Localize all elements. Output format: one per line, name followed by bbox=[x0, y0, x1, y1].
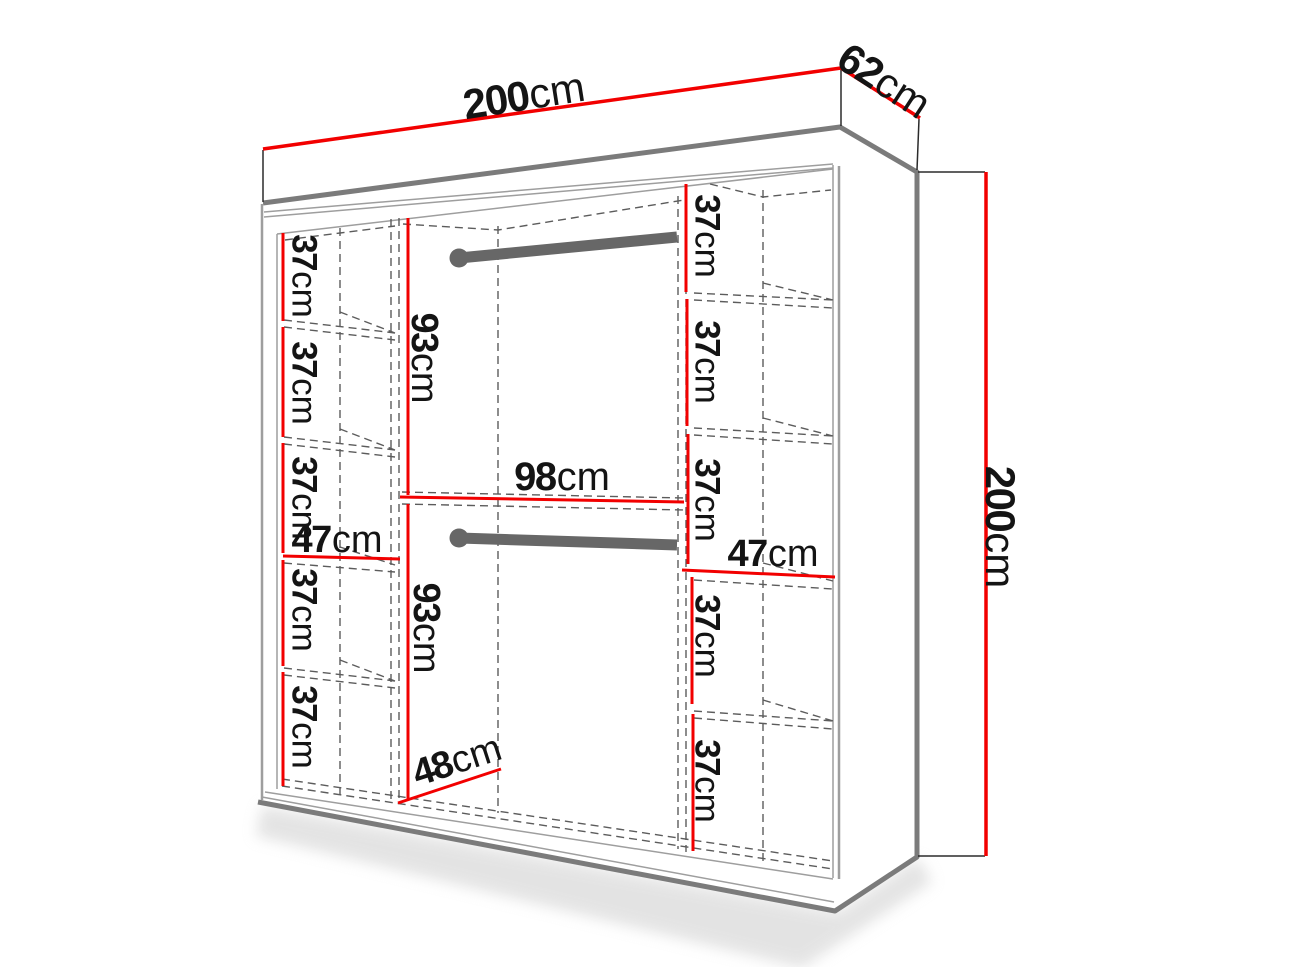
lower-hanging-height-label: 93cm bbox=[407, 583, 445, 674]
left-column-width-unit: cm bbox=[332, 521, 383, 559]
lower-hanging-rail bbox=[459, 538, 677, 545]
upper-hanging-height-label: 93cm bbox=[405, 313, 443, 404]
left-shelf-spacing-label-3: 37cm bbox=[287, 456, 322, 540]
lower-rail-end-cap bbox=[450, 529, 469, 548]
right-shelf-spacing-label-2: 37cm bbox=[690, 320, 725, 404]
left-shelf-spacing-label-5: 37cm bbox=[287, 685, 322, 769]
lower-hanging-value: 93 bbox=[407, 583, 445, 622]
middle-width-value: 98 bbox=[514, 457, 556, 497]
height-dimension-label: 200cm bbox=[979, 466, 1021, 589]
left-shelf-spacing-label-2: 37cm bbox=[287, 341, 322, 425]
height-value: 200 bbox=[979, 466, 1021, 532]
right-shelf-spacing-label-5: 37cm bbox=[690, 739, 725, 823]
upper-hanging-value: 93 bbox=[405, 313, 443, 352]
wardrobe-diagram: 200cm 62cm 200cm 93cm 93cm 98cm 47cm 47c… bbox=[0, 0, 1290, 967]
left-shelf-spacing-label-1: 37cm bbox=[287, 234, 322, 318]
right-column-width-label: 47cm bbox=[728, 535, 819, 573]
upper-rail-end-cap bbox=[450, 249, 469, 268]
right-column-width-value: 47 bbox=[728, 535, 767, 573]
right-column-width-unit: cm bbox=[768, 535, 819, 573]
right-shelf-spacing-label-1: 37cm bbox=[690, 194, 725, 278]
width-value: 200 bbox=[460, 75, 531, 127]
lower-hanging-unit: cm bbox=[407, 623, 445, 674]
right-shelf-spacing-label-4: 37cm bbox=[690, 594, 725, 678]
middle-width-label: 98cm bbox=[514, 457, 610, 497]
left-shelf-spacing-label-4: 37cm bbox=[287, 568, 322, 652]
middle-width-unit: cm bbox=[557, 457, 610, 497]
width-unit: cm bbox=[526, 66, 588, 116]
height-unit: cm bbox=[979, 532, 1021, 588]
right-shelf-spacing-label-3: 37cm bbox=[690, 458, 725, 542]
upper-hanging-unit: cm bbox=[405, 353, 443, 404]
wardrobe-drawing bbox=[0, 0, 1290, 967]
